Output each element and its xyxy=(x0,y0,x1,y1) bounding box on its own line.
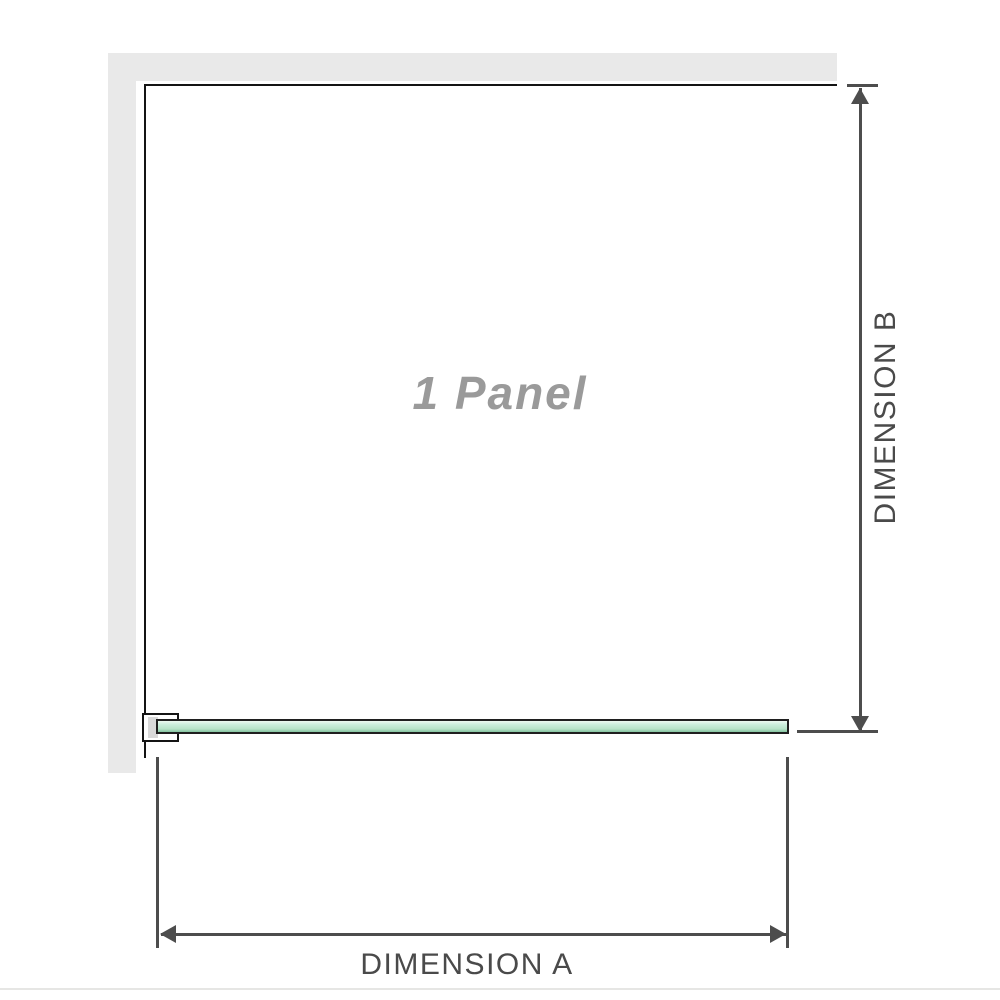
dimension-b-arrowhead-up-icon xyxy=(851,88,869,104)
dimension-a-label: DIMENSION A xyxy=(267,948,667,982)
panel-dimension-diagram: 1 Panel DIMENSION B DIMENSION A xyxy=(0,0,1000,1000)
wall-strip-left xyxy=(108,53,136,773)
glass-panel-bar xyxy=(156,719,789,734)
dimension-a-arrowhead-left-icon xyxy=(160,925,176,943)
dimension-a-arrowhead-right-icon xyxy=(770,925,786,943)
panel-label: 1 Panel xyxy=(300,366,700,420)
dimension-b-bottom-tick xyxy=(797,730,878,733)
panel-outline xyxy=(144,84,837,758)
dimension-b-top-cap xyxy=(847,84,878,87)
page-bottom-rule xyxy=(0,988,1000,990)
dimension-a-extension-right xyxy=(786,757,789,948)
dimension-b-line xyxy=(859,88,862,732)
wall-strip-top xyxy=(108,53,837,81)
dimension-b-label: DIMENSION B xyxy=(866,267,906,567)
dimension-a-line xyxy=(161,933,786,936)
dimension-a-extension-left xyxy=(156,757,159,948)
